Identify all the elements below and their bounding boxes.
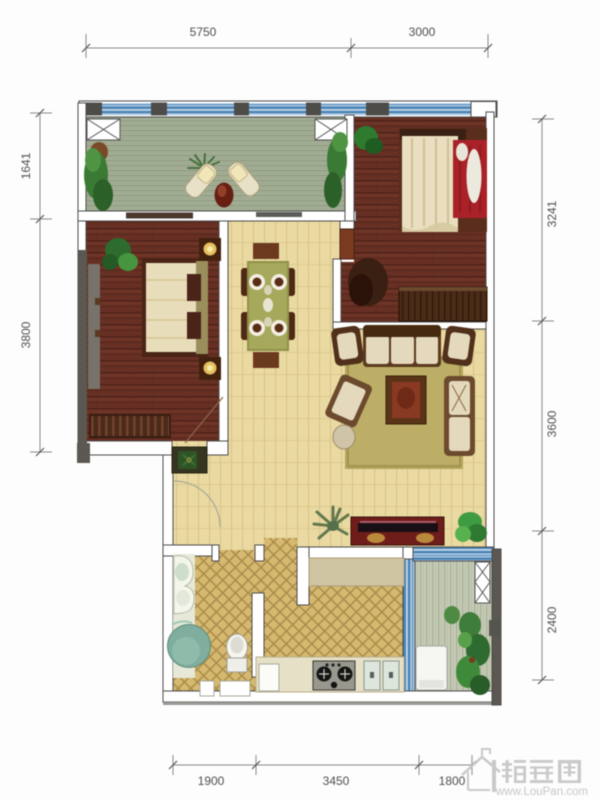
svg-text:www.LouPan.com: www.LouPan.com <box>495 786 588 798</box>
svg-text:2400: 2400 <box>545 606 559 633</box>
svg-text:5750: 5750 <box>190 25 217 39</box>
svg-text:1641: 1641 <box>19 152 33 179</box>
svg-text:3000: 3000 <box>409 25 436 39</box>
svg-text:1800: 1800 <box>439 774 466 788</box>
svg-text:3241: 3241 <box>545 200 559 227</box>
svg-text:3450: 3450 <box>323 774 350 788</box>
svg-text:3800: 3800 <box>19 321 33 348</box>
svg-text:1900: 1900 <box>198 774 225 788</box>
svg-text:3600: 3600 <box>545 410 559 437</box>
